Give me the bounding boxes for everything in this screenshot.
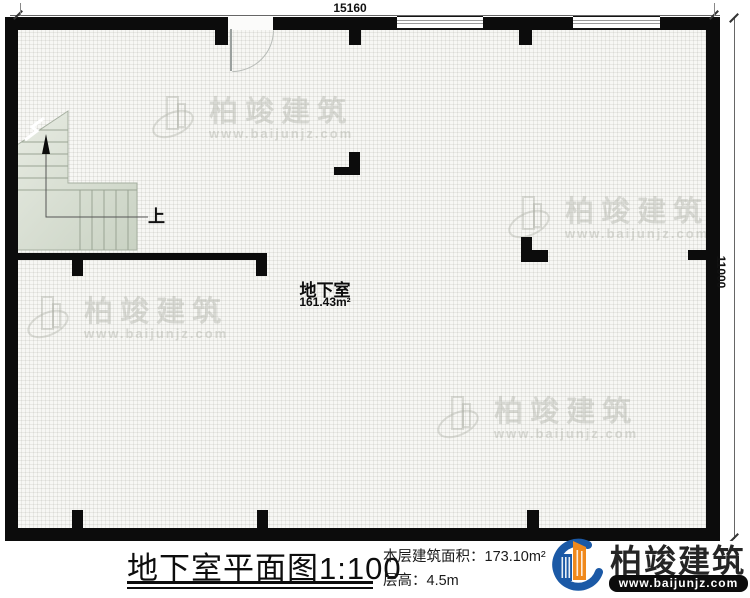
wall-pier xyxy=(256,260,267,276)
title-underline xyxy=(127,587,373,589)
wall-pier xyxy=(257,510,268,528)
wall-pier xyxy=(527,510,539,528)
floor-area-info: 本层建筑面积：173.10m² xyxy=(383,545,546,566)
interior-wall xyxy=(8,253,267,260)
wall-pier xyxy=(72,260,83,276)
dimension-label-top: 15160 xyxy=(320,1,380,15)
corner-wall xyxy=(334,167,360,175)
stairs-up-label: 上 xyxy=(148,202,165,227)
room-area: 161.43m² xyxy=(260,295,390,309)
extension-line xyxy=(714,3,715,16)
floor-plan-page: 柏竣建筑 www.baijunjz.com 柏竣建筑 www.baijunjz.… xyxy=(0,0,750,598)
wall-pier xyxy=(72,510,83,528)
window xyxy=(573,15,660,30)
dimension-label-right: 11000 xyxy=(714,252,728,292)
floor-height-value: 4.5m xyxy=(427,573,459,589)
door-opening xyxy=(228,17,273,30)
dimension-line-right xyxy=(734,18,735,539)
corner-wall xyxy=(521,250,548,262)
wall-pier xyxy=(349,30,361,45)
brand-url: www.baijunjz.com xyxy=(609,575,748,592)
wall-pier xyxy=(688,250,706,260)
dimension-line-top xyxy=(10,15,720,16)
wall-pier xyxy=(519,30,532,45)
wall-left xyxy=(5,17,18,541)
floor-area-value: 173.10m² xyxy=(485,549,546,565)
title-underline xyxy=(127,581,373,584)
window xyxy=(397,15,483,30)
staircase xyxy=(17,108,177,255)
floor-height-label: 层高： xyxy=(383,573,427,589)
wall-pier xyxy=(215,30,228,45)
floor-height-info: 层高：4.5m xyxy=(383,569,459,590)
extension-line xyxy=(20,3,21,16)
title-block: 地下室平面图1:100 本层建筑面积：173.10m² 层高：4.5m 柏竣建筑… xyxy=(0,541,750,598)
floor-area-label: 本层建筑面积： xyxy=(383,549,485,565)
brand-logo-icon xyxy=(543,538,607,598)
